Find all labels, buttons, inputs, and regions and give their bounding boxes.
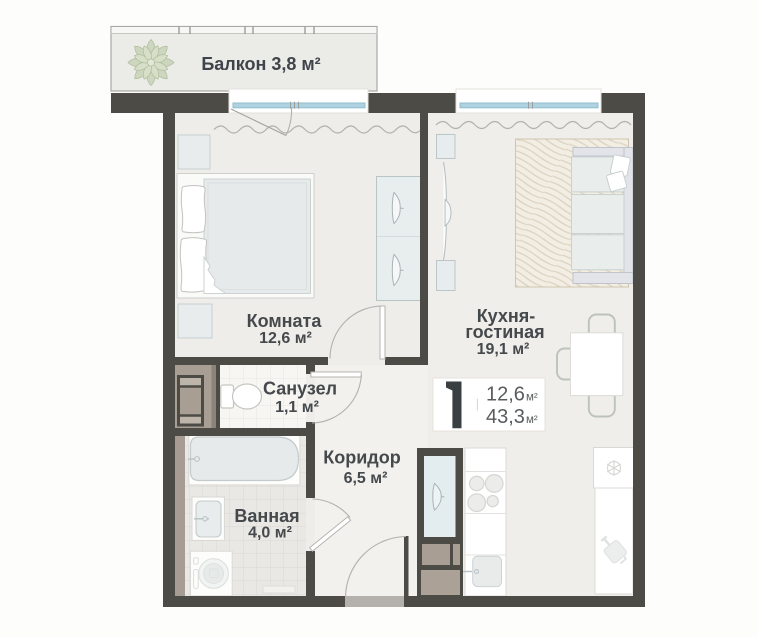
svg-text:Балкон 3,8 м²: Балкон 3,8 м²: [201, 54, 320, 74]
svg-text:Комната: Комната: [247, 311, 323, 331]
svg-text:1,1 м²: 1,1 м²: [275, 399, 319, 416]
svg-text:4,0 м²: 4,0 м²: [248, 525, 292, 542]
svg-text:19,1 м²: 19,1 м²: [477, 341, 530, 358]
svg-text:м²: м²: [526, 392, 538, 404]
svg-text:гостиная: гостиная: [465, 322, 544, 342]
svg-text:6,5 м²: 6,5 м²: [344, 470, 388, 487]
svg-text:Коридор: Коридор: [323, 448, 400, 468]
svg-text:12,6: 12,6: [486, 384, 525, 406]
svg-text:Ванная: Ванная: [234, 506, 299, 526]
svg-text:43,3: 43,3: [486, 406, 525, 428]
svg-text:м²: м²: [526, 414, 538, 426]
svg-text:12,6 м²: 12,6 м²: [259, 330, 312, 347]
svg-text:Санузел: Санузел: [263, 379, 337, 399]
